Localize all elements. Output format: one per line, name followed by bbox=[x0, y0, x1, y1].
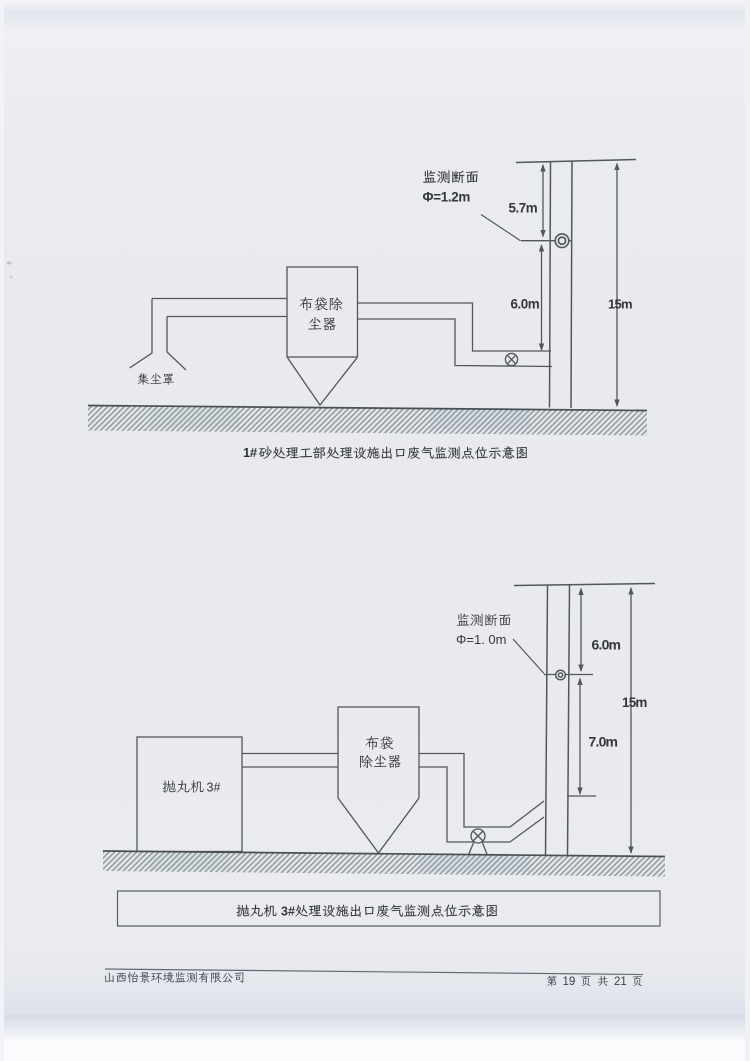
svg-text:6.0m: 6.0m bbox=[592, 637, 621, 653]
svg-text:3#: 3# bbox=[207, 781, 221, 795]
svg-text:1#: 1# bbox=[243, 445, 258, 460]
svg-text:19: 19 bbox=[563, 976, 576, 988]
svg-text:3#: 3# bbox=[281, 905, 295, 919]
svg-text:7.0m: 7.0m bbox=[589, 734, 618, 750]
svg-text:5.7m: 5.7m bbox=[509, 201, 538, 216]
svg-text:Φ=1. 0m: Φ=1. 0m bbox=[456, 632, 506, 647]
svg-text:6.0m: 6.0m bbox=[511, 297, 540, 312]
svg-text:15m: 15m bbox=[608, 297, 632, 312]
svg-text:15m: 15m bbox=[622, 695, 647, 710]
svg-text:21: 21 bbox=[614, 976, 627, 988]
svg-text:Φ=1.2m: Φ=1.2m bbox=[423, 190, 471, 205]
